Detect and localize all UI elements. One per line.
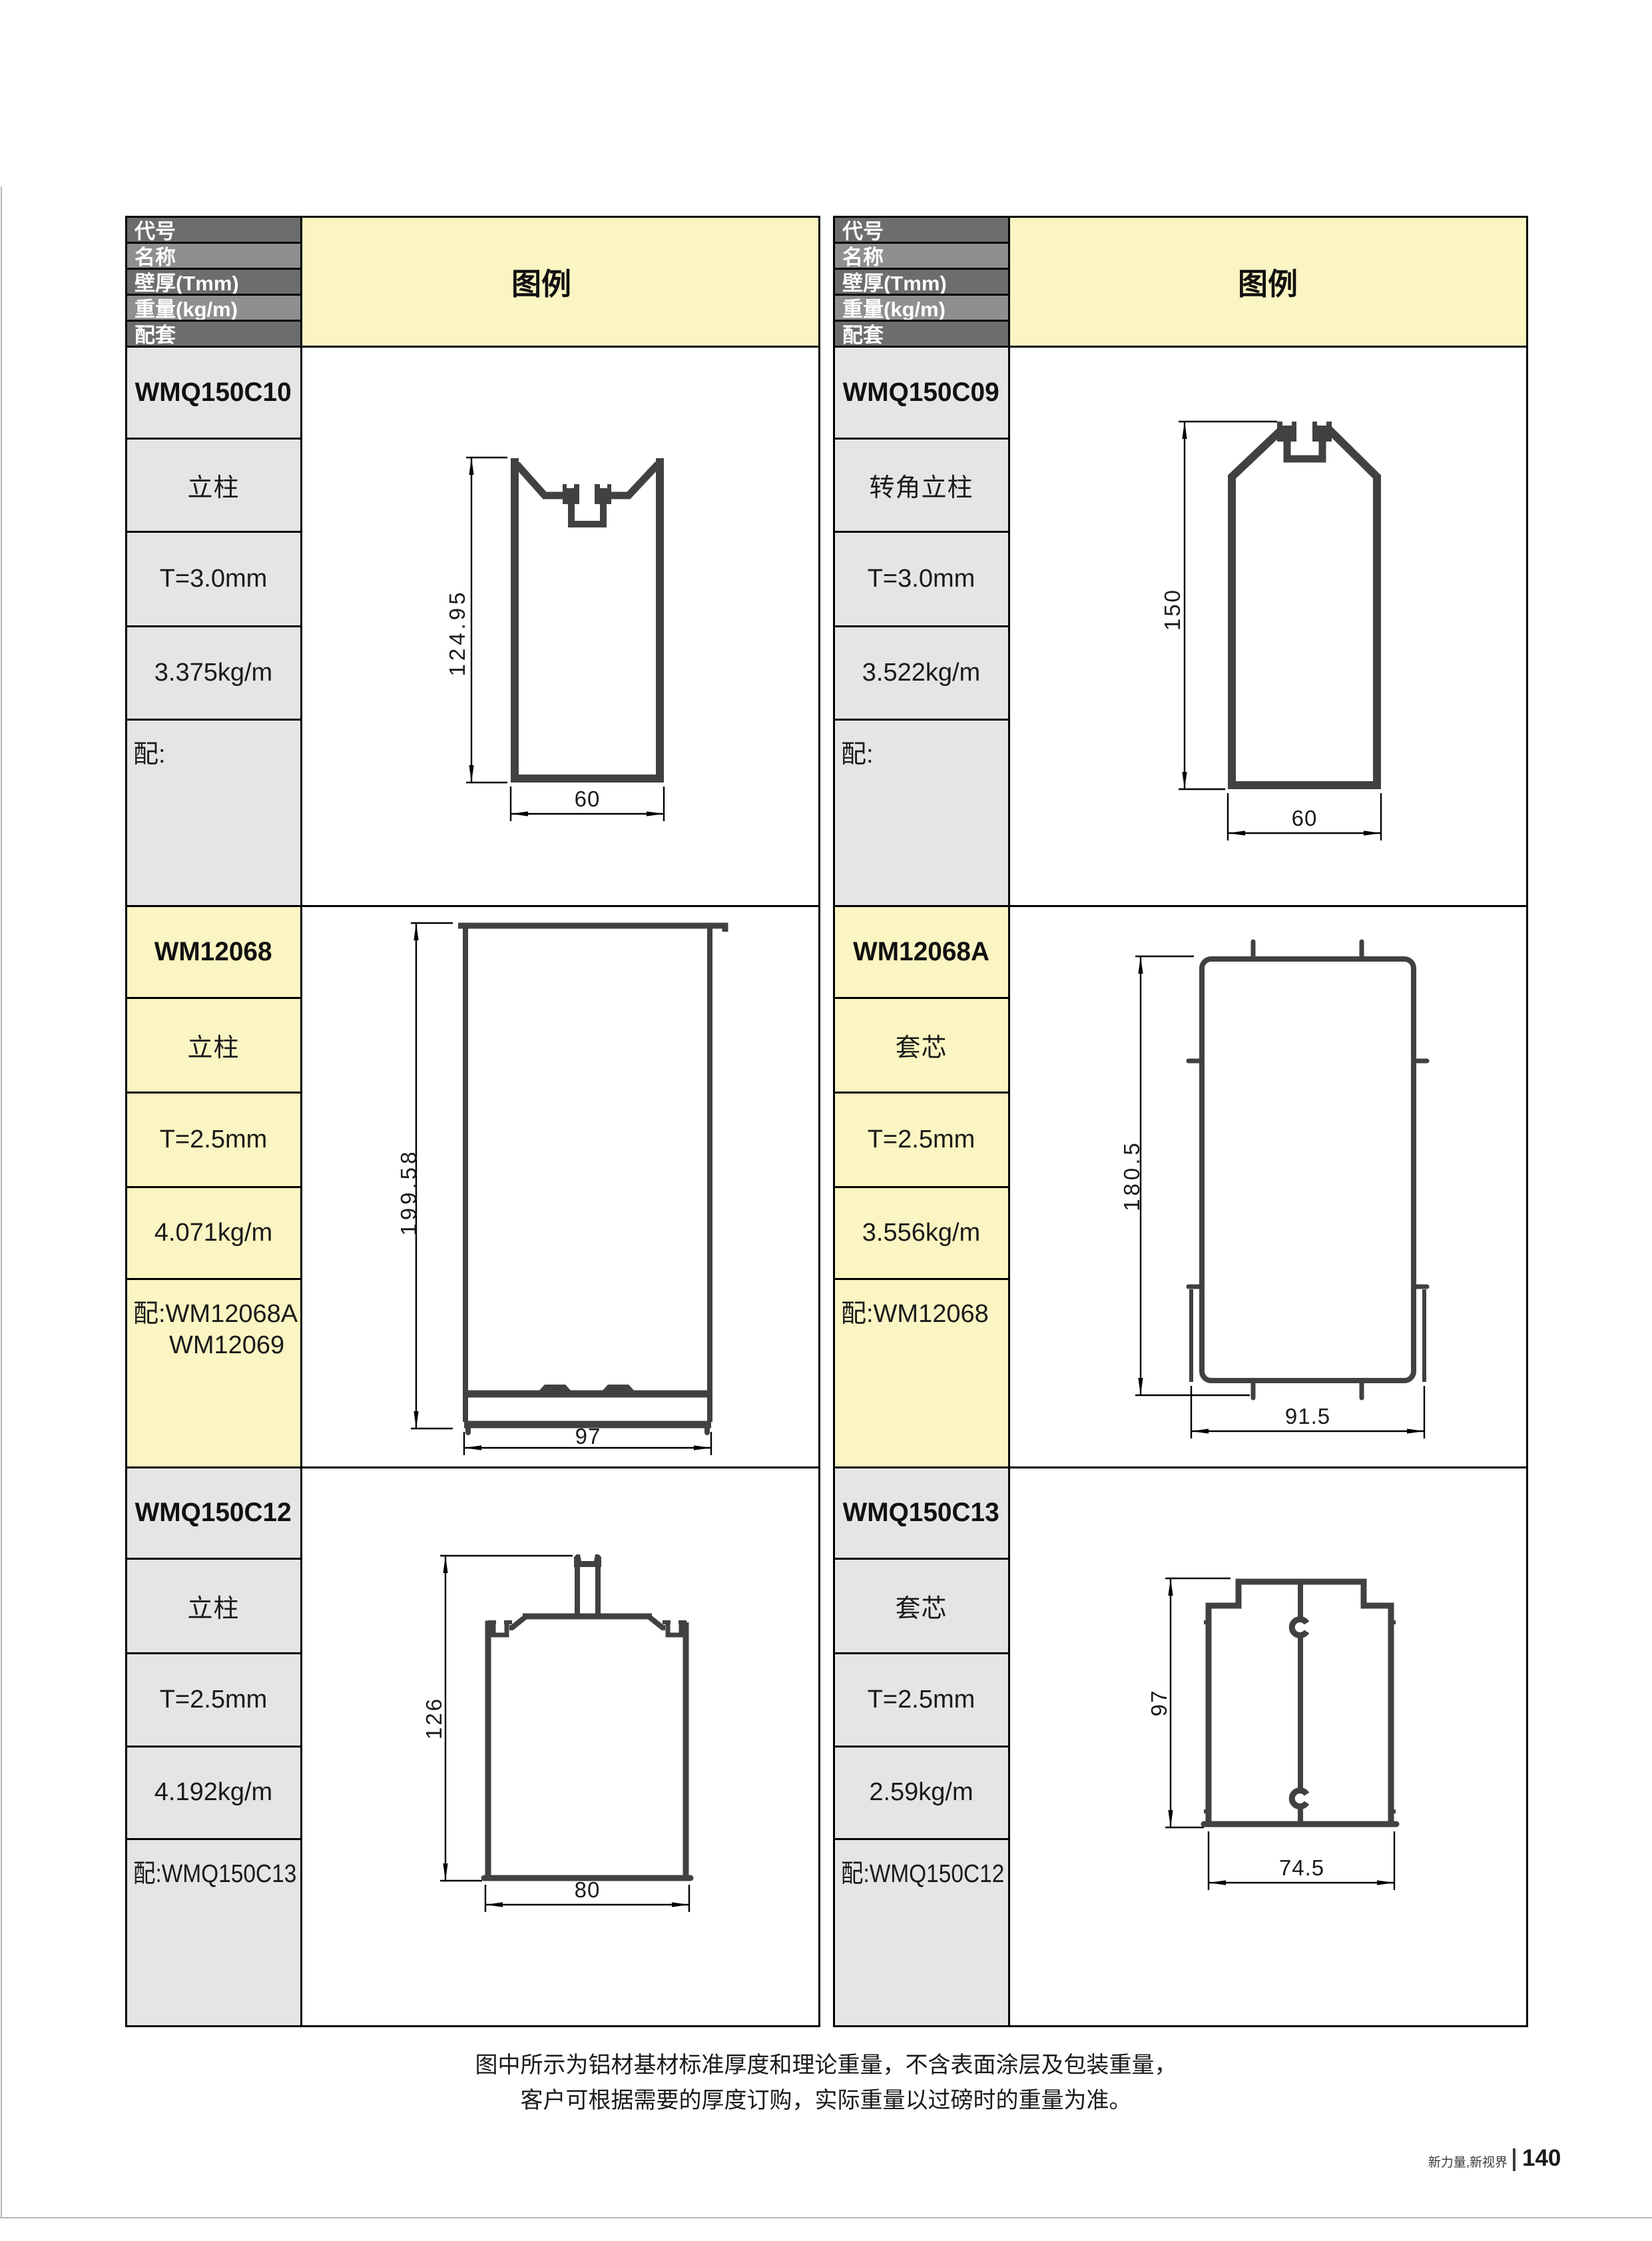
svg-text:60: 60 — [575, 787, 601, 811]
svg-text:91.5: 91.5 — [1285, 1404, 1330, 1429]
svg-text:199.58: 199.58 — [396, 1149, 421, 1236]
svg-text:60: 60 — [1292, 806, 1318, 830]
svg-text:97: 97 — [575, 1424, 601, 1448]
svg-text:124.95: 124.95 — [445, 589, 469, 677]
svg-text:180.5: 180.5 — [1119, 1139, 1144, 1211]
svg-text:126: 126 — [421, 1697, 446, 1740]
svg-text:150: 150 — [1160, 588, 1185, 631]
svg-text:80: 80 — [575, 1877, 601, 1902]
svg-text:97: 97 — [1147, 1690, 1171, 1717]
svg-text:74.5: 74.5 — [1279, 1855, 1324, 1880]
